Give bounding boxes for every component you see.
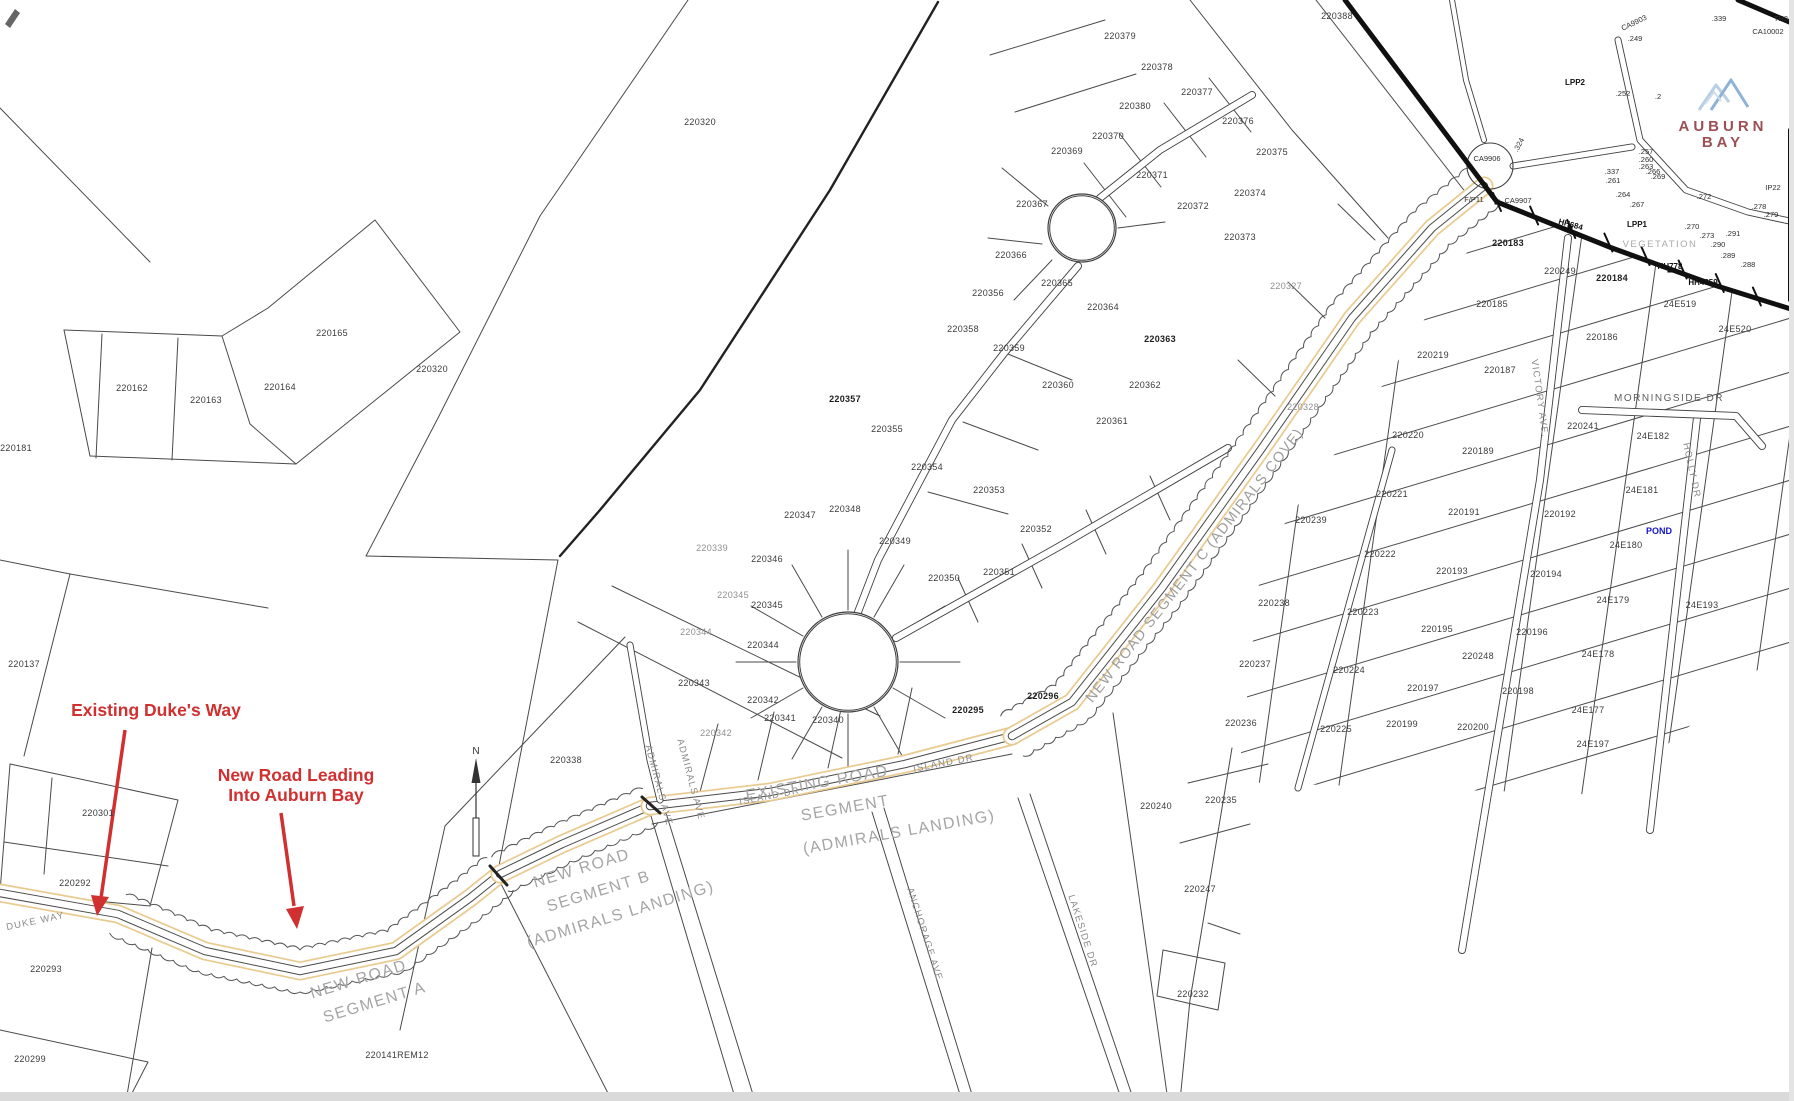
label-220345: 220345 — [717, 590, 749, 600]
label-339: .339 — [1712, 14, 1727, 23]
label-24e180: 24E180 — [1610, 540, 1643, 550]
label-220364: 220364 — [1087, 302, 1119, 312]
label-morningside-dr: MORNINGSIDE DR — [1614, 393, 1724, 404]
label-220219: 220219 — [1417, 350, 1449, 360]
label-220350: 220350 — [928, 573, 960, 583]
label-220162: 220162 — [116, 383, 148, 393]
label-24e178: 24E178 — [1582, 649, 1615, 659]
label-220377: 220377 — [1181, 87, 1213, 97]
label-holly-dr: HOLLY DR — [1680, 442, 1702, 499]
label-220240: 220240 — [1140, 801, 1172, 811]
label-220137: 220137 — [8, 659, 40, 669]
label-220342: 220342 — [747, 695, 779, 705]
label-ca9906: CA9906 — [1473, 154, 1500, 163]
label-220356: 220356 — [972, 288, 1004, 298]
label-220197: 220197 — [1407, 683, 1439, 693]
label-220196: 220196 — [1516, 627, 1548, 637]
annotation-arrowhead-newroad — [286, 906, 304, 929]
label-220237: 220237 — [1239, 659, 1271, 669]
label-220346: 220346 — [751, 554, 783, 564]
label-249: .249 — [1628, 34, 1643, 43]
label-220379: 220379 — [1104, 31, 1136, 41]
label-220186: 220186 — [1586, 332, 1618, 342]
label-220372: 220372 — [1177, 201, 1209, 211]
annotation-arrow-newroad — [281, 813, 294, 906]
label-220225: 220225 — [1320, 724, 1352, 734]
label-220351: 220351 — [983, 567, 1015, 577]
label-252: .252 — [1616, 89, 1631, 98]
label-220388: 220388 — [1321, 11, 1353, 21]
label-hh4359: HH4359 — [1688, 278, 1718, 287]
label-272: .272 — [1697, 192, 1712, 201]
label-f-p11: F/P11 — [1464, 195, 1483, 204]
label-220348: 220348 — [829, 504, 861, 514]
label-220366: 220366 — [995, 250, 1027, 260]
label-220248: 220248 — [1462, 651, 1494, 661]
auburn-bay-logo: AUBURN BAY — [1679, 80, 1768, 151]
label-288: .288 — [1741, 260, 1756, 269]
label-220328: 220328 — [1287, 402, 1319, 412]
label-220181: 220181 — [0, 443, 32, 453]
label-220141rem12: 220141REM12 — [365, 1050, 428, 1060]
label-220200: 220200 — [1457, 722, 1489, 732]
label-220185: 220185 — [1476, 299, 1508, 309]
label-220352: 220352 — [1020, 524, 1052, 534]
label-220238: 220238 — [1258, 598, 1290, 608]
label-220184: 220184 — [1596, 273, 1628, 283]
label-220376: 220376 — [1222, 116, 1254, 126]
bottom-edge-strip — [0, 1092, 1794, 1101]
label-269: .269 — [1651, 172, 1666, 181]
label-220344: 220344 — [747, 640, 779, 650]
label-24e182: 24E182 — [1637, 431, 1670, 441]
label-220239: 220239 — [1295, 515, 1327, 525]
label-220343: 220343 — [678, 678, 710, 688]
label-220345: 220345 — [751, 600, 783, 610]
label-vegetation: VEGETATION — [1623, 239, 1698, 250]
label-220165: 220165 — [316, 328, 348, 338]
label-24e179: 24E179 — [1597, 595, 1630, 605]
label-220355: 220355 — [871, 424, 903, 434]
label-220371: 220371 — [1136, 170, 1168, 180]
label-220223: 220223 — [1347, 607, 1379, 617]
label-264: .264 — [1616, 190, 1631, 199]
label-220375: 220375 — [1256, 147, 1288, 157]
label-220342: 220342 — [700, 728, 732, 738]
label-220187: 220187 — [1484, 365, 1516, 375]
label-220224: 220224 — [1333, 665, 1365, 675]
label-220296: 220296 — [1027, 691, 1059, 701]
label-220373: 220373 — [1224, 232, 1256, 242]
label-220199: 220199 — [1386, 719, 1418, 729]
label-220344: 220344 — [680, 627, 712, 637]
label-220380: 220380 — [1119, 101, 1151, 111]
parcel-lines-layer — [0, 0, 1470, 1101]
label-220249: 220249 — [1544, 266, 1576, 276]
label-220293: 220293 — [30, 964, 62, 974]
label-220320: 220320 — [416, 364, 448, 374]
label-2: .2 — [1655, 92, 1661, 101]
label-220222: 220222 — [1364, 549, 1396, 559]
label-220193: 220193 — [1436, 566, 1468, 576]
label-24e181: 24E181 — [1626, 485, 1659, 495]
label-220232: 220232 — [1177, 989, 1209, 999]
label-220362: 220362 — [1129, 380, 1161, 390]
label-220192: 220192 — [1544, 509, 1576, 519]
label-220327: 220327 — [1270, 281, 1302, 291]
label-220220: 220220 — [1392, 430, 1424, 440]
label-289: .289 — [1721, 251, 1736, 260]
label-220361: 220361 — [1096, 416, 1128, 426]
label-ca9907: CA9907 — [1504, 196, 1531, 205]
survey-map-page: AUBURN BAY 22038822037922037822037722037… — [0, 0, 1794, 1101]
logo-text-bay: BAY — [1702, 134, 1744, 151]
label-279: .279 — [1764, 210, 1779, 219]
label-220370: 220370 — [1092, 131, 1124, 141]
label-ca10002: CA10002 — [1752, 27, 1783, 36]
label-220198: 220198 — [1502, 686, 1534, 696]
label-existing-duke-s-way: Existing Duke's Way — [71, 700, 241, 720]
label-220360: 220360 — [1042, 380, 1074, 390]
label-220378: 220378 — [1141, 62, 1173, 72]
label-220358: 220358 — [947, 324, 979, 334]
label-220338: 220338 — [550, 755, 582, 765]
label-duke-way: DUKE WAY — [5, 910, 65, 933]
label-220295: 220295 — [952, 705, 984, 715]
label-220347: 220347 — [784, 510, 816, 520]
label-220349: 220349 — [879, 536, 911, 546]
label-220369: 220369 — [1051, 146, 1083, 156]
label-220221: 220221 — [1376, 489, 1408, 499]
label-273: .273 — [1700, 231, 1715, 240]
labels-layer: 2203882203792203782203772203762203752203… — [0, 11, 1792, 1064]
label-220367: 220367 — [1016, 199, 1048, 209]
label-220357: 220357 — [829, 394, 861, 404]
label-220241: 220241 — [1567, 421, 1599, 431]
label-new-road-leading: New Road Leading — [218, 765, 375, 785]
label-220353: 220353 — [973, 485, 1005, 495]
label-337: .337 — [1605, 167, 1620, 176]
label-291: .291 — [1726, 229, 1741, 238]
revision-clouds-layer — [110, 168, 1499, 993]
label-24e193: 24E193 — [1686, 600, 1719, 610]
label-24e520: 24E520 — [1719, 324, 1752, 334]
survey-map-canvas[interactable]: AUBURN BAY 22038822037922037822037722037… — [0, 0, 1794, 1101]
annotation-arrows — [91, 730, 304, 929]
label-n: N — [472, 746, 479, 757]
label-220359: 220359 — [993, 343, 1025, 353]
label-pond: POND — [1646, 526, 1673, 536]
label-220339: 220339 — [696, 543, 728, 553]
label-324: .324 — [1511, 136, 1526, 153]
label-220235: 220235 — [1205, 795, 1237, 805]
label-290: .290 — [1711, 240, 1726, 249]
label-270: .270 — [1685, 222, 1700, 231]
label-hh778: HH778 — [1658, 262, 1683, 271]
label-lakeside-dr: LAKESIDE DR — [1065, 893, 1099, 969]
label-segment: SEGMENT — [800, 792, 891, 824]
pencil-icon — [5, 9, 20, 28]
label-220163: 220163 — [190, 395, 222, 405]
label-220195: 220195 — [1421, 624, 1453, 634]
label-220320: 220320 — [684, 117, 716, 127]
label-267: .267 — [1630, 200, 1645, 209]
label-220301: 220301 — [82, 808, 114, 818]
label-220363: 220363 — [1144, 334, 1176, 344]
label-24e519: 24E519 — [1664, 299, 1697, 309]
label-into-auburn-bay: Into Auburn Bay — [228, 785, 364, 805]
label-ca9903: CA9903 — [1620, 13, 1648, 33]
label-ip22: IP22 — [1765, 183, 1780, 192]
label-220247: 220247 — [1184, 884, 1216, 894]
label-220194: 220194 — [1530, 569, 1562, 579]
label-24e197: 24E197 — [1577, 739, 1610, 749]
right-edge-strip — [1789, 0, 1794, 1101]
label-24e177: 24E177 — [1572, 705, 1605, 715]
label-261: .261 — [1606, 176, 1621, 185]
label-220164: 220164 — [264, 382, 296, 392]
label-220299: 220299 — [14, 1054, 46, 1064]
label-220189: 220189 — [1462, 446, 1494, 456]
label-220341: 220341 — [764, 713, 796, 723]
logo-text-auburn: AUBURN — [1679, 118, 1768, 135]
label-220236: 220236 — [1225, 718, 1257, 728]
label-lpp1: LPP1 — [1627, 220, 1648, 229]
label-220183: 220183 — [1492, 238, 1524, 248]
label-220374: 220374 — [1234, 188, 1266, 198]
label-220292: 220292 — [59, 878, 91, 888]
label-220340: 220340 — [812, 715, 844, 725]
north-arrow-icon — [472, 758, 481, 856]
label-lpp2: LPP2 — [1565, 78, 1586, 87]
label-220365: 220365 — [1041, 278, 1073, 288]
label-220191: 220191 — [1448, 507, 1480, 517]
label-220354: 220354 — [911, 462, 943, 472]
